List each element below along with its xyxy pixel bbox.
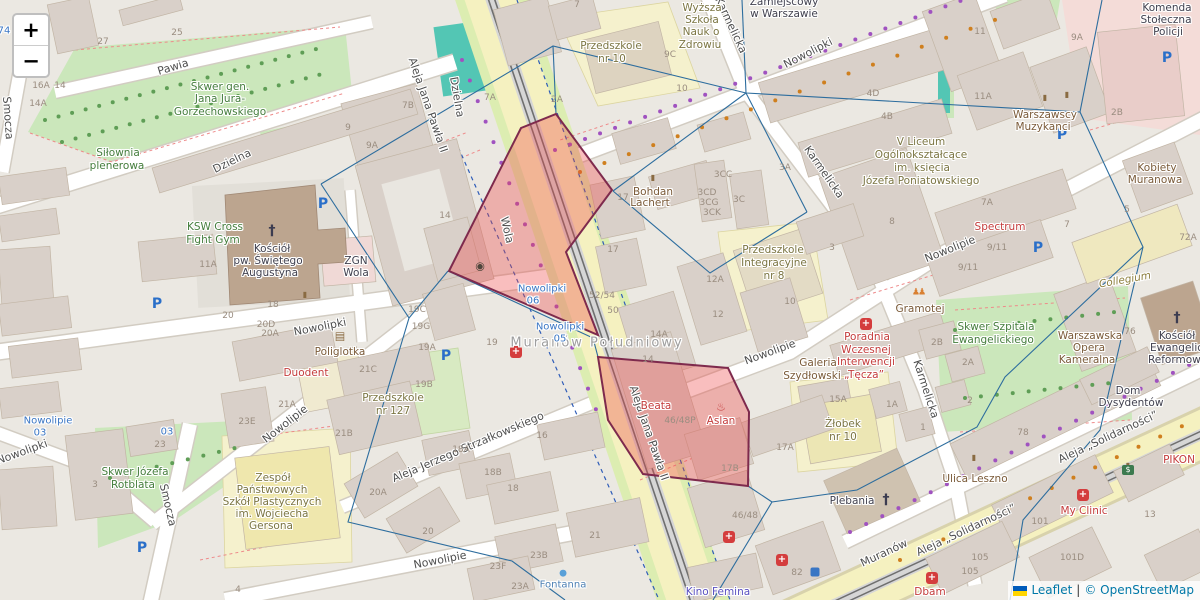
- zoom-in-button[interactable]: +: [14, 15, 48, 46]
- attribution-separator: |: [1076, 581, 1080, 600]
- leaflet-link[interactable]: Leaflet: [1031, 581, 1072, 600]
- map-viewport[interactable]: PPPPPPP†††▮▮▮▮▮▮▤++++++♟♟◉♨$● PawiaDziel…: [0, 0, 1200, 600]
- ukraine-flag-icon: [1013, 586, 1027, 596]
- zoom-out-button[interactable]: −: [14, 46, 48, 76]
- map-canvas[interactable]: [0, 0, 1200, 600]
- attribution-bar: Leaflet | © OpenStreetMap: [1008, 581, 1200, 600]
- zoom-control: + −: [12, 13, 50, 78]
- osm-copyright-link[interactable]: © OpenStreetMap: [1084, 581, 1194, 600]
